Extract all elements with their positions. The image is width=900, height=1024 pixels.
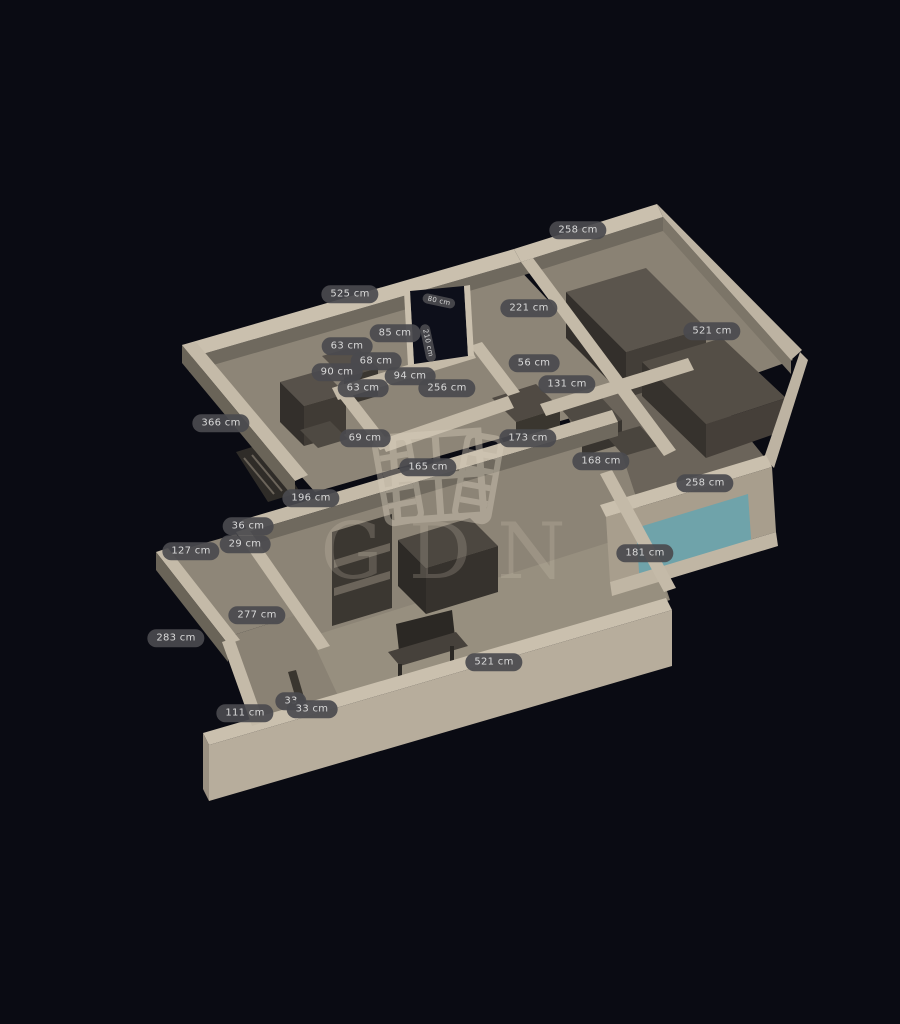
watermark-text: GDN [320, 507, 591, 597]
wall-bottom-cap [203, 733, 209, 801]
floorplan-3d-scene[interactable]: GDN [0, 0, 900, 1024]
floorplan-viewport[interactable]: GDN 258 cm525 cm221 cm80 cm210 cm85 cm63… [0, 0, 900, 1024]
doorway-opening [410, 286, 468, 364]
